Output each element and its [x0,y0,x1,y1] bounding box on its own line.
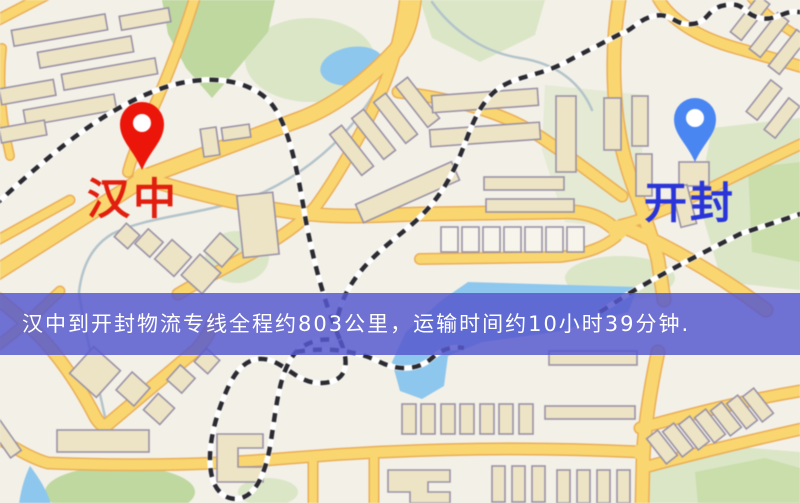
destination-city-label: 开封 [644,179,736,229]
route-info-text: 汉中到开封物流专线全程约803公里，运输时间约10小时39分钟. [22,312,690,336]
route-info-banner: 汉中到开封物流专线全程约803公里，运输时间约10小时39分钟. [0,293,800,355]
logistics-map-screenshot: 汉中 开封 汉中到开封物流专线全程约803公里，运输时间约10小时39分钟. [0,0,800,503]
map-canvas: 汉中 开封 [0,0,800,503]
map-image: 汉中 开封 [0,0,800,503]
origin-city-label: 汉中 [87,175,179,225]
